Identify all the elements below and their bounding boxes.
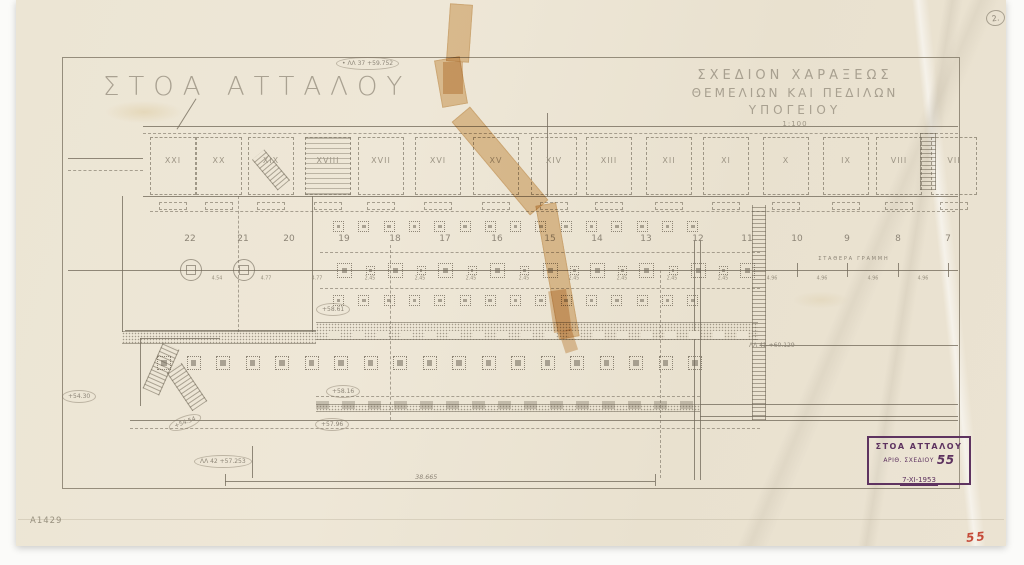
spot-elevation: +54.30 [62,390,96,403]
bay-dimension: 4.96 [817,276,828,282]
footing-lower-row [384,295,395,306]
circled-footing [233,259,255,281]
shop-room: X [763,137,809,195]
stylobate-strip [316,322,758,340]
plan-line [225,481,655,482]
footing-lower-row [687,295,698,306]
bay-dimension: 2.45 [667,276,678,282]
bay-dimension: 2.45 [518,276,529,282]
colonnade-footing [629,356,643,370]
footing-lower-row [485,295,496,306]
footing-lower-row [510,295,521,306]
bay-dimension: 4.77 [311,276,322,282]
plan-line [130,428,760,429]
shop-room: XIII [586,137,632,195]
room-number-label: IX [824,156,868,165]
column-footing [691,263,706,278]
colonnade-footing [541,356,555,370]
door-threshold [314,202,342,210]
plan-line [130,420,958,421]
scanned-drawing-sheet: ΣΤΟΑ ΑΤΤΑΛΟΥ ΣΧΕΔΙΟΝ ΧΑΡΑΞΕΩΣ ΘΕΜΕΛΙΩΝ Κ… [0,0,1024,565]
axis-number: 13 [640,234,651,244]
axis-number: 8 [895,234,901,244]
footing-upper-row [561,221,572,232]
plan-line [177,98,197,129]
shop-room: VIII [876,137,922,195]
plan-line [655,474,656,486]
benchmark-station: • ΛΛ 37 +59.752 [336,57,399,70]
door-threshold [832,202,860,210]
plan-line [143,126,958,127]
footing-upper-row [333,221,344,232]
axis-number: 11 [741,234,752,244]
shop-room: XVI [415,137,461,195]
shop-room: IX [823,137,869,195]
colonnade-footing [246,356,260,370]
benchmark-station: ΛΛ 42 +57.253 [194,455,252,468]
stippled-wall [122,331,316,344]
spot-elevation: +58.16 [326,385,360,398]
door-threshold [772,202,800,210]
room-number-label: XVII [359,156,403,165]
colonnade-footing [570,356,584,370]
plan-line [700,416,958,417]
footing-lower-row [409,295,420,306]
column-footing [490,263,505,278]
footing-lower-row [460,295,471,306]
door-threshold [712,202,740,210]
colonnade-footing [275,356,289,370]
bay-dimension: 4.96 [918,276,929,282]
door-threshold [257,202,285,210]
plan-line [700,404,958,405]
door-threshold [940,202,968,210]
half-bay-footing [618,266,627,275]
bay-dimension: 2.45 [616,276,627,282]
hatched-wall [752,205,766,420]
door-threshold [205,202,233,210]
room-number-label: VIII [877,156,921,165]
stamp-date: 7-XI-1953 [900,476,938,486]
stamp-number-value: 55 [937,453,955,467]
footing-lower-row [535,295,546,306]
column-footing [639,263,654,278]
room-number-label: XII [647,156,691,165]
plan-line [68,170,143,171]
half-bay-footing [719,266,728,275]
footing-lower-row [434,295,445,306]
footing-upper-row [637,221,648,232]
footing-upper-row [687,221,698,232]
bay-dimension: 2.45 [364,276,375,282]
footing-upper-row [662,221,673,232]
axis-number: 19 [338,234,349,244]
plan-line [316,396,700,397]
colonnade-footing [334,356,348,370]
plan-line [122,196,123,332]
door-threshold [367,202,395,210]
bay-dimension: 2.45 [717,276,728,282]
plan-line [140,338,141,406]
shop-room: XXI [150,137,196,195]
axis-number: 10 [791,234,802,244]
room-number-label: X [764,156,808,165]
axis-tick [847,263,848,277]
tape-repair-segment [446,3,473,62]
axis-number: 21 [237,234,248,244]
spot-elevation: +58.61 [316,303,350,316]
bay-dimension: 4.77 [261,276,272,282]
red-drawing-number: 55 [965,529,987,545]
spot-elevation: +54.54 [167,411,204,435]
plan-line [143,133,958,134]
colonnade-footing [423,356,437,370]
axis-number: 7 [945,234,951,244]
axis-number: 9 [844,234,850,244]
footing-lower-row [358,295,369,306]
footing-lower-row [586,295,597,306]
hatched-wall [167,363,208,411]
axis-number: 14 [591,234,602,244]
room-number-label: XI [704,156,748,165]
colonnade-footing [511,356,525,370]
axis-number: 17 [439,234,450,244]
plan-line [68,158,143,159]
half-bay-footing [468,266,477,275]
colonnade-footing [452,356,466,370]
half-bay-footing [366,266,375,275]
room-number-label: XVIII [306,156,350,165]
room-number-label: VII [932,156,976,165]
shop-room: XIX [248,137,294,195]
plan-line [312,196,313,332]
footing-lower-row [662,295,673,306]
half-bay-footing [570,266,579,275]
door-threshold [159,202,187,210]
footing-upper-row [409,221,420,232]
stamp-title: ΣΤΟΑ ΑΤΤΑΛΟΥ [869,442,969,451]
bay-dimension: 2.45 [415,276,426,282]
colonnade-footing [393,356,407,370]
colonnade-footing [659,356,673,370]
column-footing [590,263,605,278]
half-bay-footing [520,266,529,275]
colonnade-footing [216,356,230,370]
axis-tick [948,263,949,277]
room-number-label: XIX [249,156,293,165]
footing-lower-row [637,295,648,306]
axis-number: 18 [389,234,400,244]
room-number-label: XXI [151,156,195,165]
benchmark-station: ΛΛ 41 +60.129 [744,340,800,351]
axis-line-label: ΣΤΑΘΕΡΑ ΓΡΑΜΜΗ [818,256,889,262]
axis-tick [898,263,899,277]
bay-dimension: 2.45 [466,276,477,282]
plan-line [225,474,226,486]
column-footing [337,263,352,278]
plan-line [660,270,661,478]
colonnade-footing [187,356,201,370]
colonnade-footing [364,356,378,370]
column-footing [388,263,403,278]
bay-dimension: 4.54 [211,276,222,282]
shop-room: XIV [531,137,577,195]
colonnade-footing [305,356,319,370]
colonnade-footing [157,356,171,370]
door-threshold [885,202,913,210]
colonnade-footing [482,356,496,370]
shop-room: XVII [358,137,404,195]
half-bay-footing [417,266,426,275]
axis-number: 16 [491,234,502,244]
footing-upper-row [485,221,496,232]
shop-room: XII [646,137,692,195]
shop-room: XX [196,137,242,195]
room-number-label: XIV [532,156,576,165]
footing-upper-row [586,221,597,232]
circled-footing [180,259,202,281]
column-footing [438,263,453,278]
door-threshold [595,202,623,210]
footing-upper-row [510,221,521,232]
axis-number: 22 [184,234,195,244]
room-number-label: XIII [587,156,631,165]
axis-tick [797,263,798,277]
catalog-number: A1429 [30,516,62,526]
bay-dimension: 4.96 [767,276,778,282]
footing-bump-row [316,401,700,409]
footing-upper-row [434,221,445,232]
column-footing [740,263,755,278]
footing-upper-row [460,221,471,232]
footing-upper-row [358,221,369,232]
stamp-number-label: ΑΡΙΘ. ΣΧΕΔΙΟΥ [883,457,933,464]
footing-upper-row [384,221,395,232]
stamp-box: ΣΤΟΑ ΑΤΤΑΛΟΥ ΑΡΙΘ. ΣΧΕΔΙΟΥ 55 7-XI-1953 [867,436,971,485]
shop-room: VII [931,137,977,195]
footing-lower-row [611,295,622,306]
bay-dimension: 4.96 [867,276,878,282]
axis-number: 12 [692,234,703,244]
room-number-label: XX [197,156,241,165]
overall-dimension-label: 38.665 [415,473,437,480]
colonnade-footing [688,356,702,370]
door-threshold [655,202,683,210]
tape-repair-overlap [443,62,463,94]
half-bay-footing [669,266,678,275]
spot-elevation: +57.96 [315,418,349,431]
door-threshold [424,202,452,210]
footing-upper-row [611,221,622,232]
room-number-label: XVI [416,156,460,165]
door-threshold [482,202,510,210]
plan-line [143,196,958,197]
colonnade-footing [600,356,614,370]
shop-room: XVIII [305,137,351,195]
plan-line [252,446,253,478]
axis-number: 20 [283,234,294,244]
shop-room: XI [703,137,749,195]
